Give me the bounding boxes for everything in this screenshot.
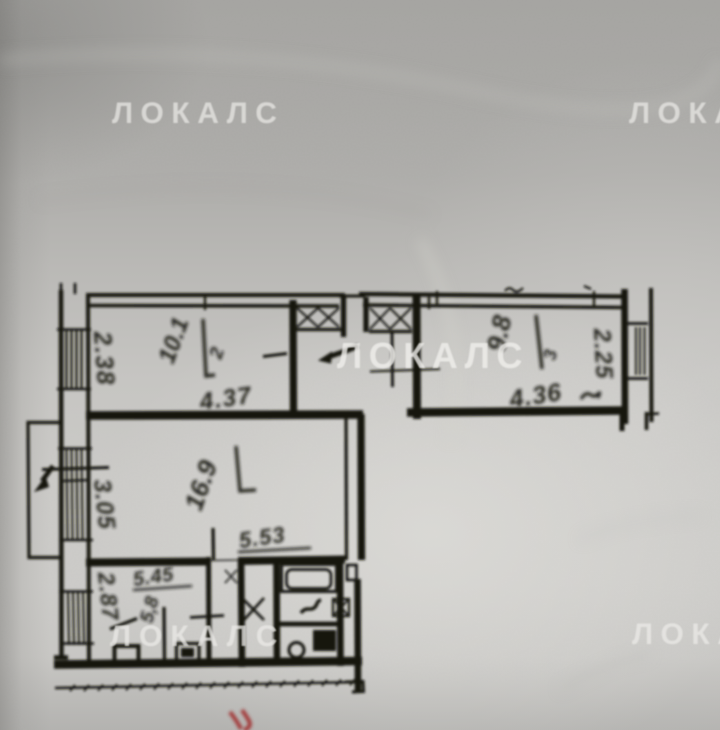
svg-text:2.87: 2.87 xyxy=(93,570,124,622)
svg-text:2.38: 2.38 xyxy=(88,329,120,386)
svg-text:3.05: 3.05 xyxy=(88,478,120,531)
svg-text:2.25: 2.25 xyxy=(588,327,618,380)
